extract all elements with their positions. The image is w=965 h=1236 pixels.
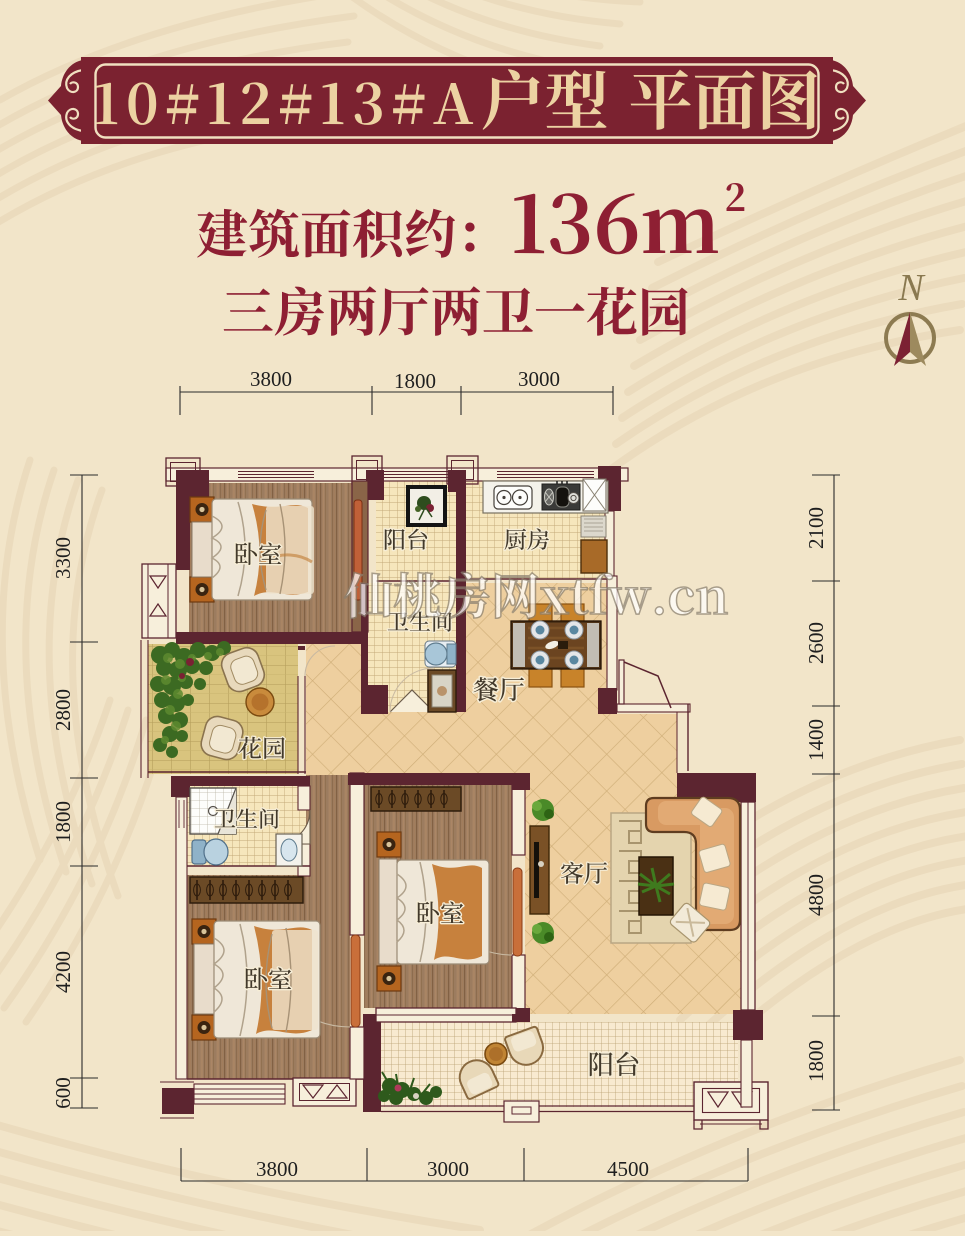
svg-text:4800: 4800 [804, 874, 828, 916]
svg-text:3800: 3800 [250, 367, 292, 391]
svg-text:2600: 2600 [804, 622, 828, 664]
svg-text:1800: 1800 [804, 1040, 828, 1082]
svg-text:2800: 2800 [51, 689, 75, 731]
svg-text:3000: 3000 [518, 367, 560, 391]
svg-text:3000: 3000 [427, 1157, 469, 1181]
svg-text:4200: 4200 [51, 951, 75, 993]
svg-text:4500: 4500 [607, 1157, 649, 1181]
svg-text:1400: 1400 [804, 719, 828, 761]
svg-text:3300: 3300 [51, 537, 75, 579]
svg-text:600: 600 [51, 1077, 75, 1109]
svg-text:1800: 1800 [394, 369, 436, 393]
svg-text:3800: 3800 [256, 1157, 298, 1181]
svg-text:2100: 2100 [804, 507, 828, 549]
svg-text:N: N [897, 267, 926, 309]
svg-text:1800: 1800 [51, 801, 75, 843]
